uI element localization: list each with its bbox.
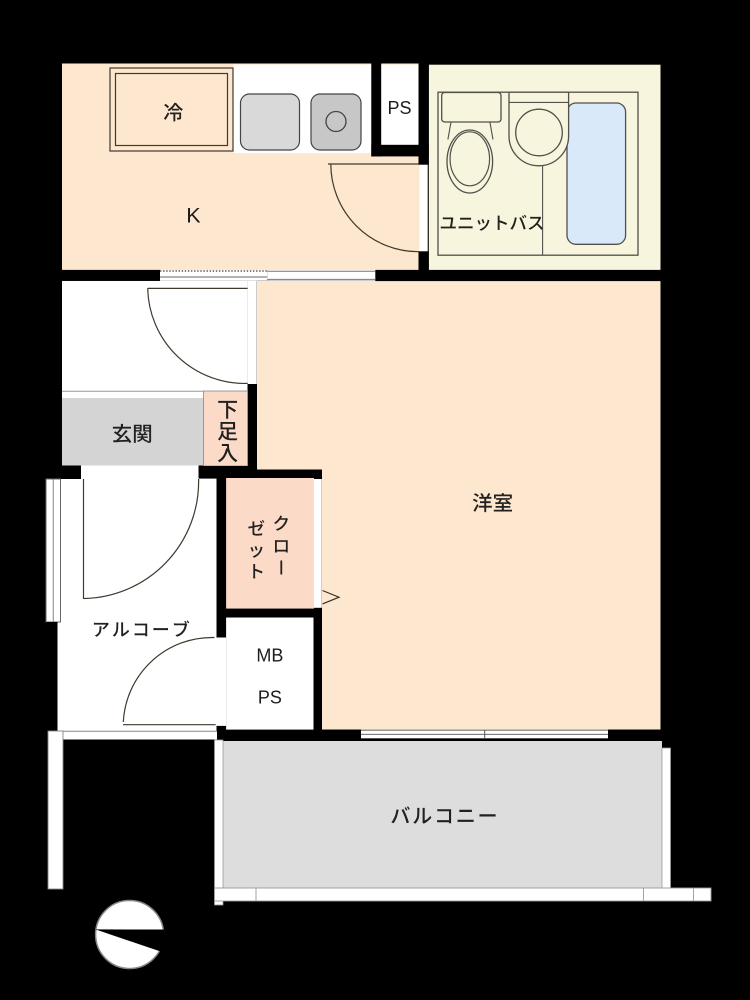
svg-text:K: K — [186, 203, 201, 227]
svg-text:MB: MB — [256, 645, 283, 665]
svg-text:PS: PS — [258, 687, 282, 707]
svg-text:PS: PS — [387, 98, 411, 118]
